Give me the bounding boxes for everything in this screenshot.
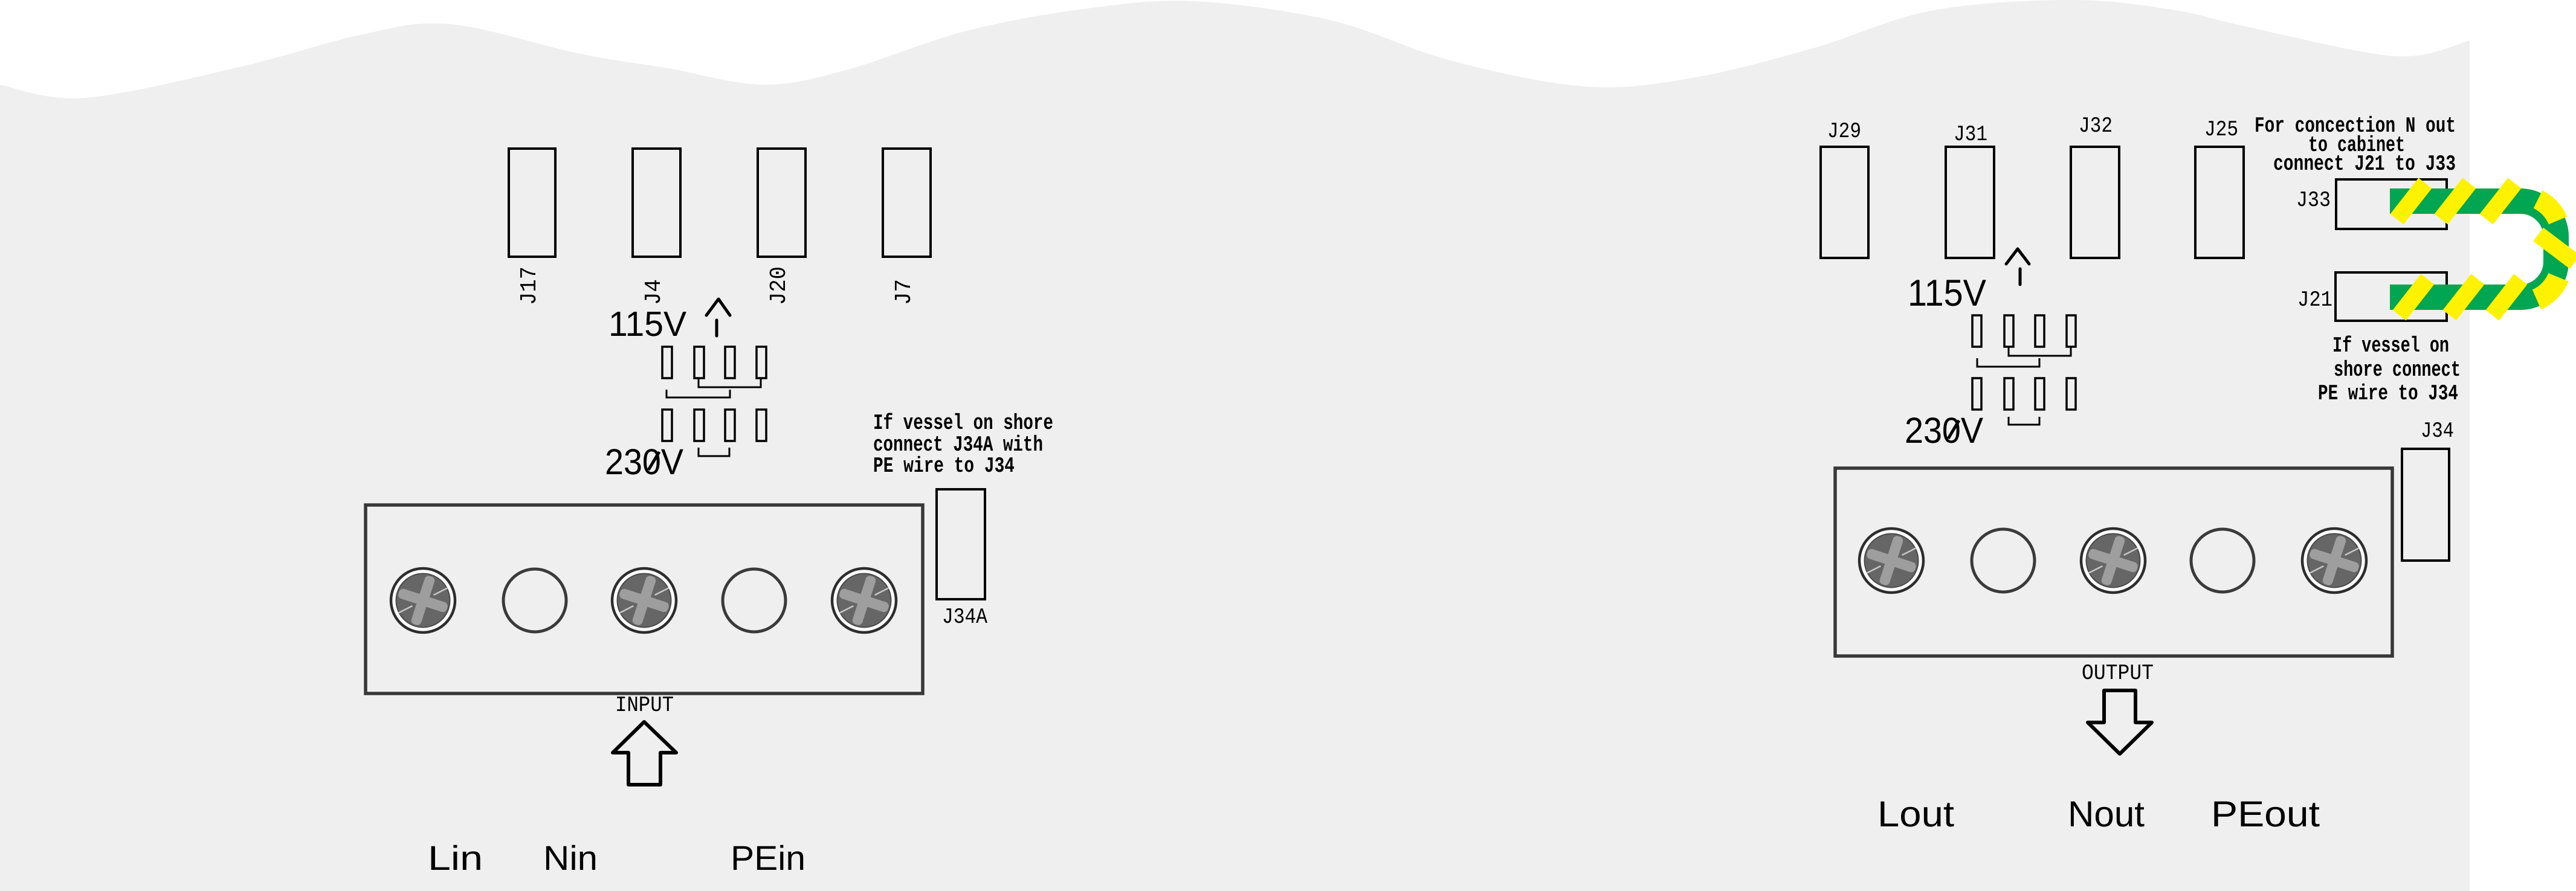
svg-text:PEout: PEout: [2211, 794, 2320, 834]
svg-text:Lin: Lin: [428, 839, 483, 878]
svg-text:J34A: J34A: [942, 605, 987, 629]
svg-text:115V: 115V: [608, 304, 686, 344]
svg-text:J31: J31: [1954, 122, 1987, 147]
svg-text:115V: 115V: [1908, 272, 1987, 314]
svg-text:shore connect: shore connect: [2334, 358, 2461, 382]
svg-text:230V: 230V: [605, 442, 683, 482]
svg-text:J21: J21: [2297, 288, 2332, 312]
svg-text:J20: J20: [766, 266, 792, 305]
svg-text:INPUT: INPUT: [615, 693, 674, 718]
svg-text:Nin: Nin: [543, 839, 598, 878]
svg-text:J7: J7: [891, 279, 917, 305]
svg-text:J4: J4: [641, 279, 667, 305]
svg-text:230V: 230V: [1905, 410, 1983, 451]
svg-text:OUTPUT: OUTPUT: [2082, 661, 2154, 686]
svg-text:connect J21 to J33: connect J21 to J33: [2273, 152, 2456, 176]
svg-text:Lout: Lout: [1877, 794, 1954, 834]
svg-text:PE wire to J34: PE wire to J34: [2318, 381, 2458, 406]
svg-text:J33: J33: [2296, 188, 2331, 213]
svg-text:Nout: Nout: [2068, 794, 2145, 834]
svg-text:PEin: PEin: [731, 839, 805, 878]
svg-text:J29: J29: [1827, 119, 1861, 144]
svg-text:J32: J32: [2079, 114, 2113, 138]
svg-text:J17: J17: [517, 266, 543, 305]
svg-text:J34: J34: [2421, 419, 2454, 443]
svg-text:If vessel on shore: If vessel on shore: [873, 411, 1053, 436]
svg-text:If vessel on: If vessel on: [2332, 333, 2449, 358]
svg-text:PE wire to J34: PE wire to J34: [873, 454, 1015, 478]
svg-text:J25: J25: [2204, 117, 2238, 142]
